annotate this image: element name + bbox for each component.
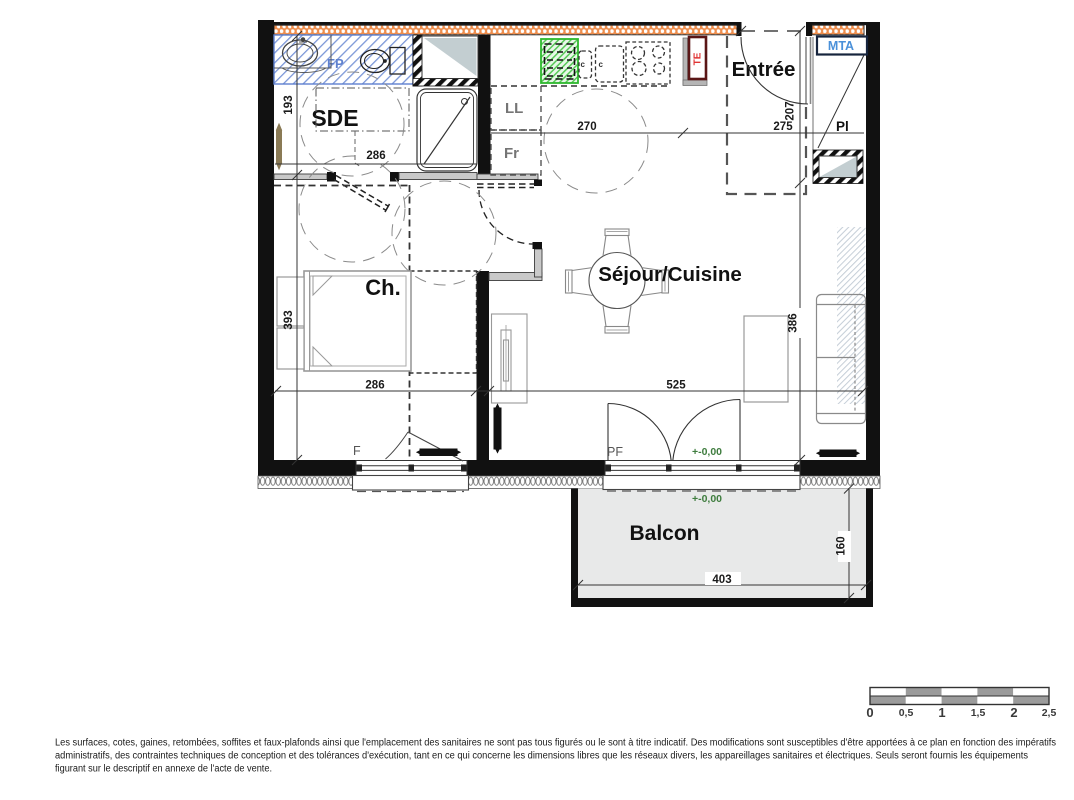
svg-text:Entrée: Entrée bbox=[732, 58, 796, 81]
svg-text:+-0,00: +-0,00 bbox=[692, 493, 722, 505]
svg-text:207: 207 bbox=[785, 101, 797, 120]
svg-text:2: 2 bbox=[1010, 705, 1017, 720]
svg-text:286: 286 bbox=[365, 380, 384, 392]
svg-text:TE: TE bbox=[693, 52, 704, 65]
svg-text:1,5: 1,5 bbox=[971, 707, 986, 719]
svg-text:525: 525 bbox=[666, 380, 686, 392]
svg-text:PF: PF bbox=[607, 445, 623, 459]
svg-text:F: F bbox=[353, 444, 361, 458]
svg-text:Pl: Pl bbox=[836, 119, 849, 134]
svg-text:c: c bbox=[581, 60, 586, 69]
svg-text:figurant sur le descriptif en: figurant sur le descriptif en annexe de … bbox=[55, 764, 272, 775]
svg-text:administratifs, des contrainte: administratifs, des contraintes techniqu… bbox=[55, 751, 1028, 762]
svg-text:Fr: Fr bbox=[504, 145, 519, 162]
svg-text:275: 275 bbox=[773, 121, 793, 133]
svg-text:Balcon: Balcon bbox=[629, 522, 699, 545]
svg-text:2,5: 2,5 bbox=[1042, 707, 1057, 719]
svg-text:393: 393 bbox=[283, 310, 295, 329]
svg-text:270: 270 bbox=[577, 121, 596, 133]
svg-text:1: 1 bbox=[938, 705, 945, 720]
svg-text:SDE: SDE bbox=[311, 105, 358, 131]
svg-text:386: 386 bbox=[788, 313, 800, 332]
svg-text:160: 160 bbox=[836, 536, 848, 555]
svg-text:0,5: 0,5 bbox=[899, 707, 914, 719]
svg-text:FP: FP bbox=[327, 56, 344, 71]
svg-text:MTA: MTA bbox=[828, 39, 854, 53]
svg-text:0: 0 bbox=[866, 705, 873, 720]
svg-text:+-0,00: +-0,00 bbox=[692, 446, 722, 458]
svg-text:Les surfaces, cotes, gaines, r: Les surfaces, cotes, gaines, retombées, … bbox=[55, 738, 1056, 749]
svg-text:LL: LL bbox=[505, 100, 523, 117]
svg-text:403: 403 bbox=[712, 574, 731, 586]
svg-text:c: c bbox=[599, 60, 604, 69]
svg-text:Ch.: Ch. bbox=[365, 275, 400, 300]
svg-text:286: 286 bbox=[366, 150, 385, 162]
svg-text:193: 193 bbox=[283, 95, 295, 114]
svg-text:Séjour/Cuisine: Séjour/Cuisine bbox=[598, 263, 742, 286]
